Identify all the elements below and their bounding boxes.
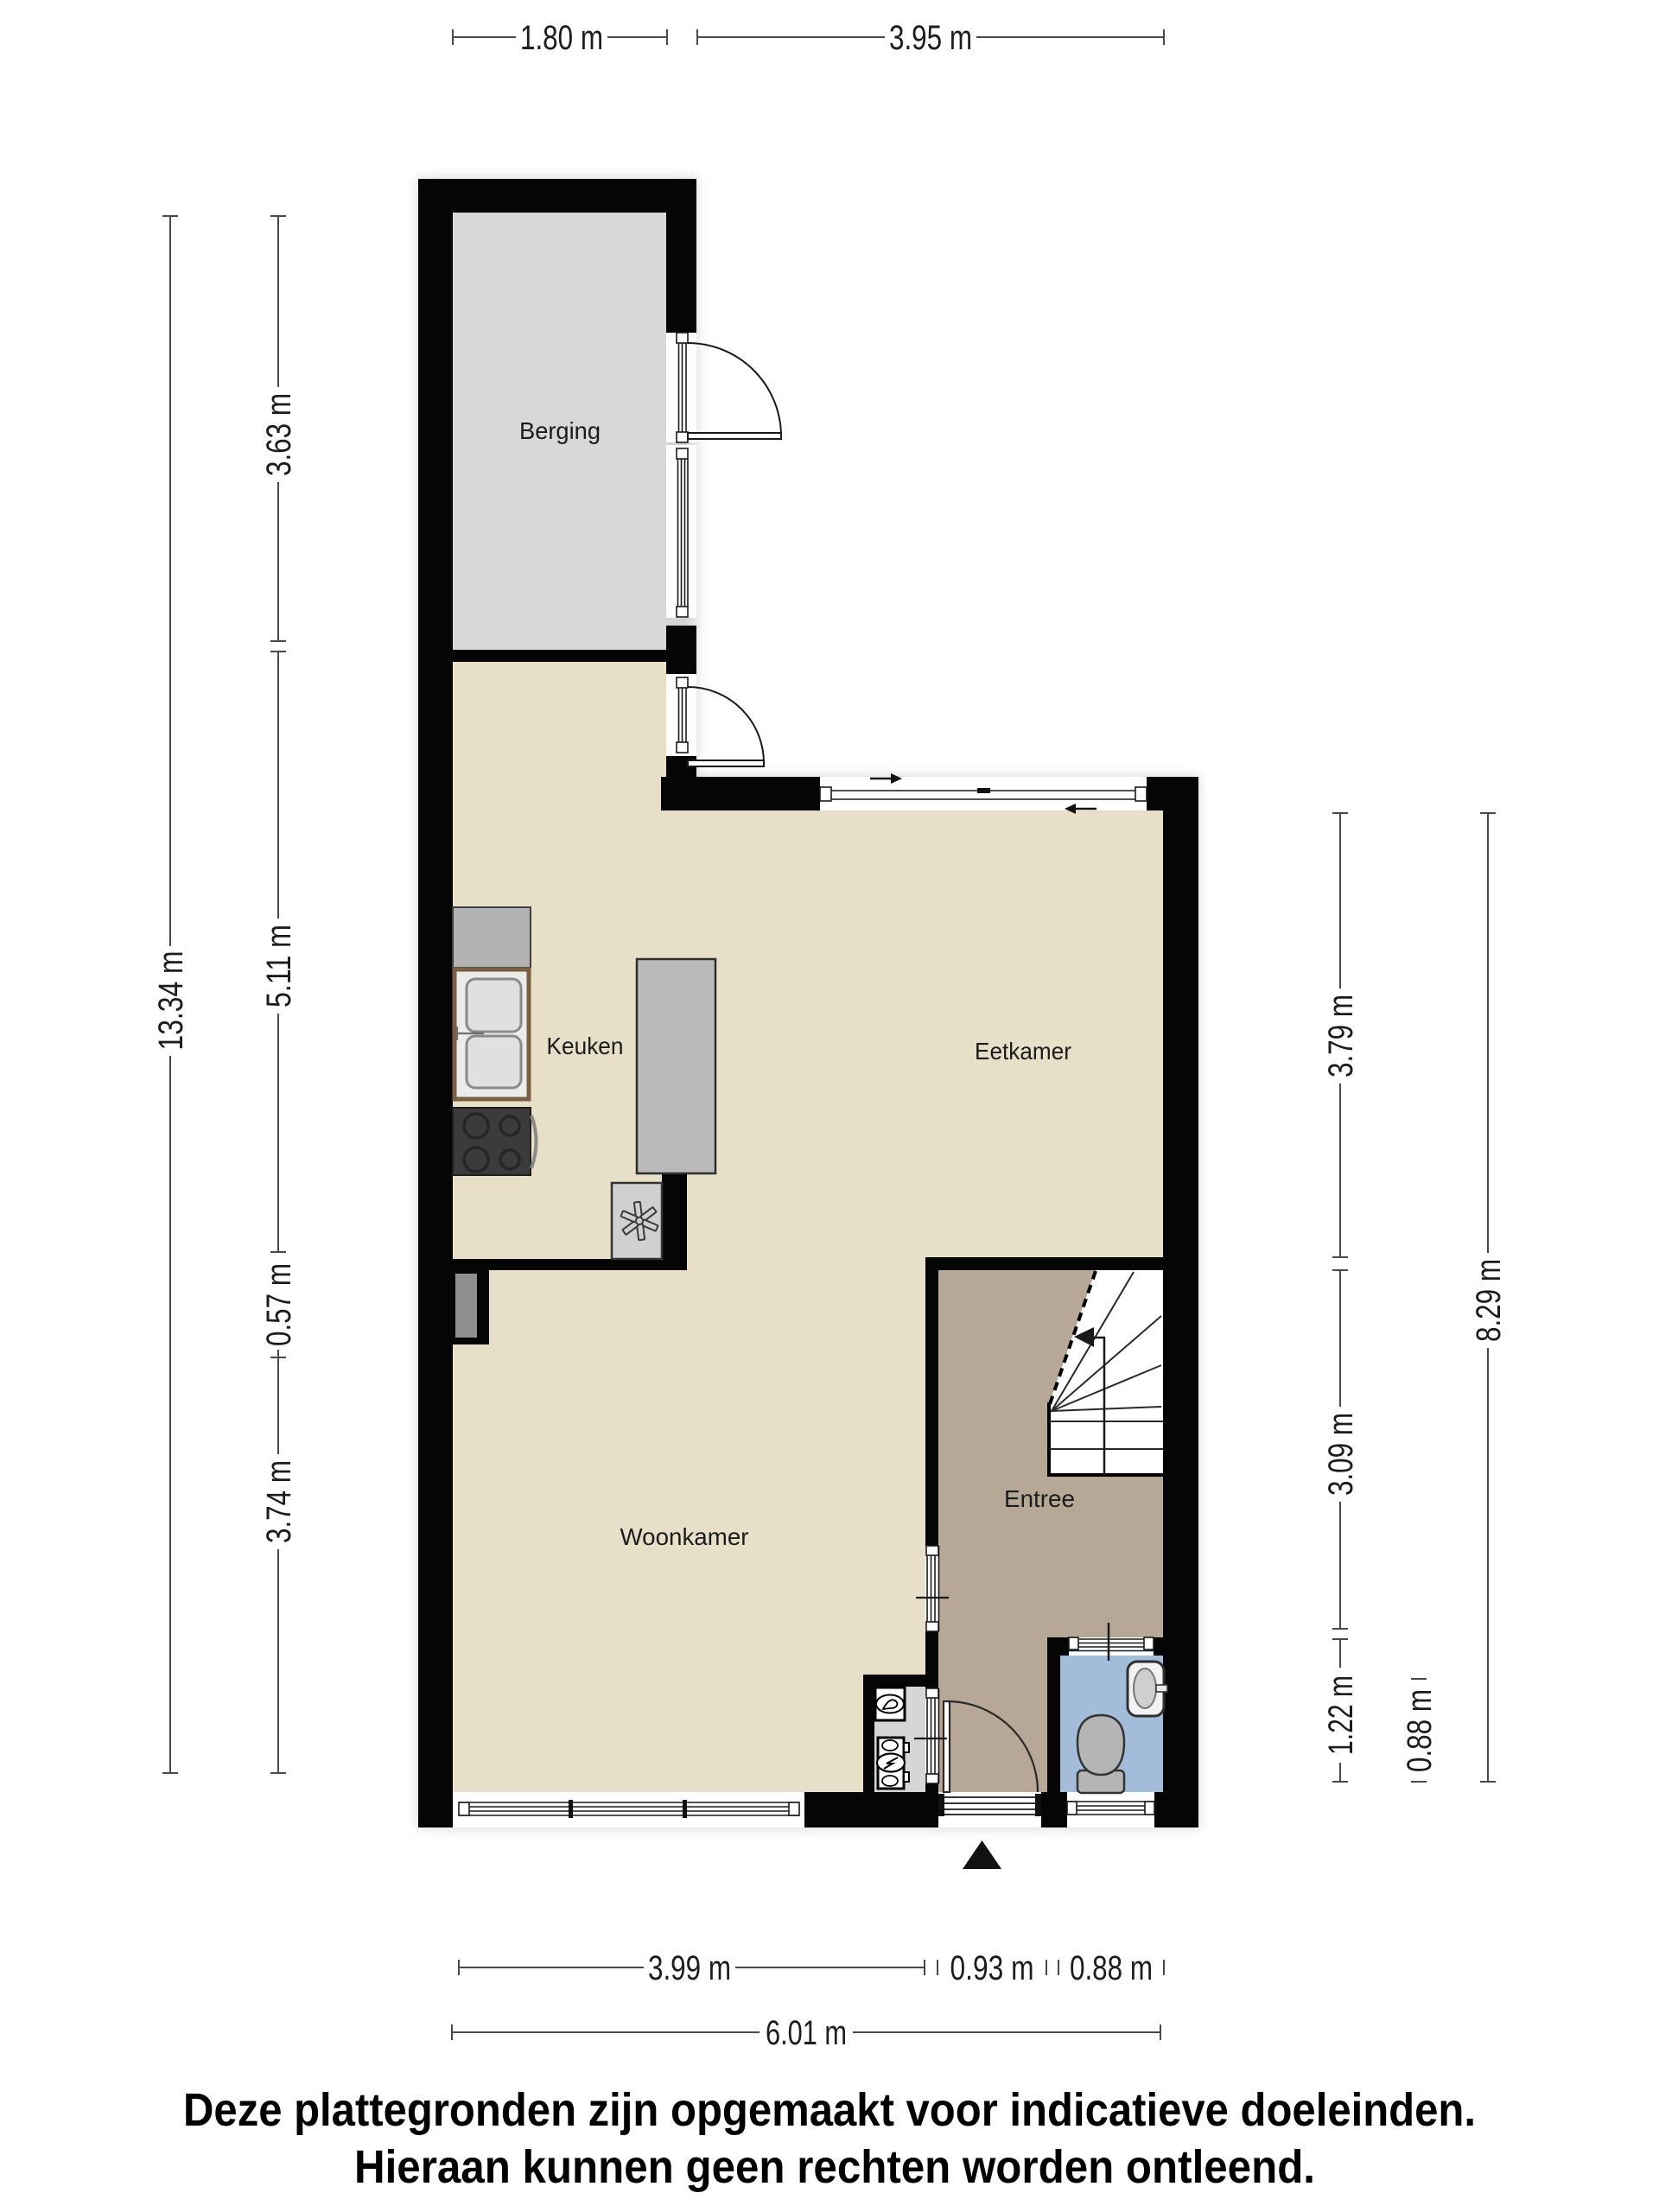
svg-text:Woonkamer: Woonkamer: [620, 1523, 749, 1550]
svg-text:3.63 m: 3.63 m: [260, 393, 298, 476]
svg-text:Berging: Berging: [519, 417, 601, 444]
svg-text:0.57 m: 0.57 m: [260, 1263, 298, 1346]
svg-text:0.88 m: 0.88 m: [1401, 1689, 1439, 1772]
svg-text:13.34 m: 13.34 m: [152, 951, 190, 1051]
svg-text:Keuken: Keuken: [547, 1033, 624, 1059]
svg-text:3.09 m: 3.09 m: [1322, 1413, 1360, 1496]
svg-text:3.99 m: 3.99 m: [648, 1949, 731, 1987]
svg-text:6.01 m: 6.01 m: [766, 2014, 847, 2052]
svg-text:1.22 m: 1.22 m: [1322, 1675, 1360, 1755]
svg-text:0.88 m: 0.88 m: [1070, 1949, 1153, 1987]
svg-text:5.11 m: 5.11 m: [260, 925, 298, 1007]
svg-text:1.80 m: 1.80 m: [520, 19, 603, 57]
svg-text:3.79 m: 3.79 m: [1322, 995, 1360, 1077]
svg-text:3.74 m: 3.74 m: [260, 1460, 298, 1543]
svg-text:Entree: Entree: [1004, 1485, 1075, 1512]
svg-text:8.29 m: 8.29 m: [1470, 1259, 1508, 1342]
svg-text:Hieraan kunnen geen rechten wo: Hieraan kunnen geen rechten worden ontle…: [354, 2141, 1315, 2193]
svg-text:3.95 m: 3.95 m: [889, 19, 972, 57]
svg-text:0.93 m: 0.93 m: [950, 1949, 1034, 1987]
svg-text:Eetkamer: Eetkamer: [975, 1038, 1071, 1065]
svg-text:Deze plattegronden zijn opgema: Deze plattegronden zijn opgemaakt voor i…: [183, 2084, 1476, 2136]
